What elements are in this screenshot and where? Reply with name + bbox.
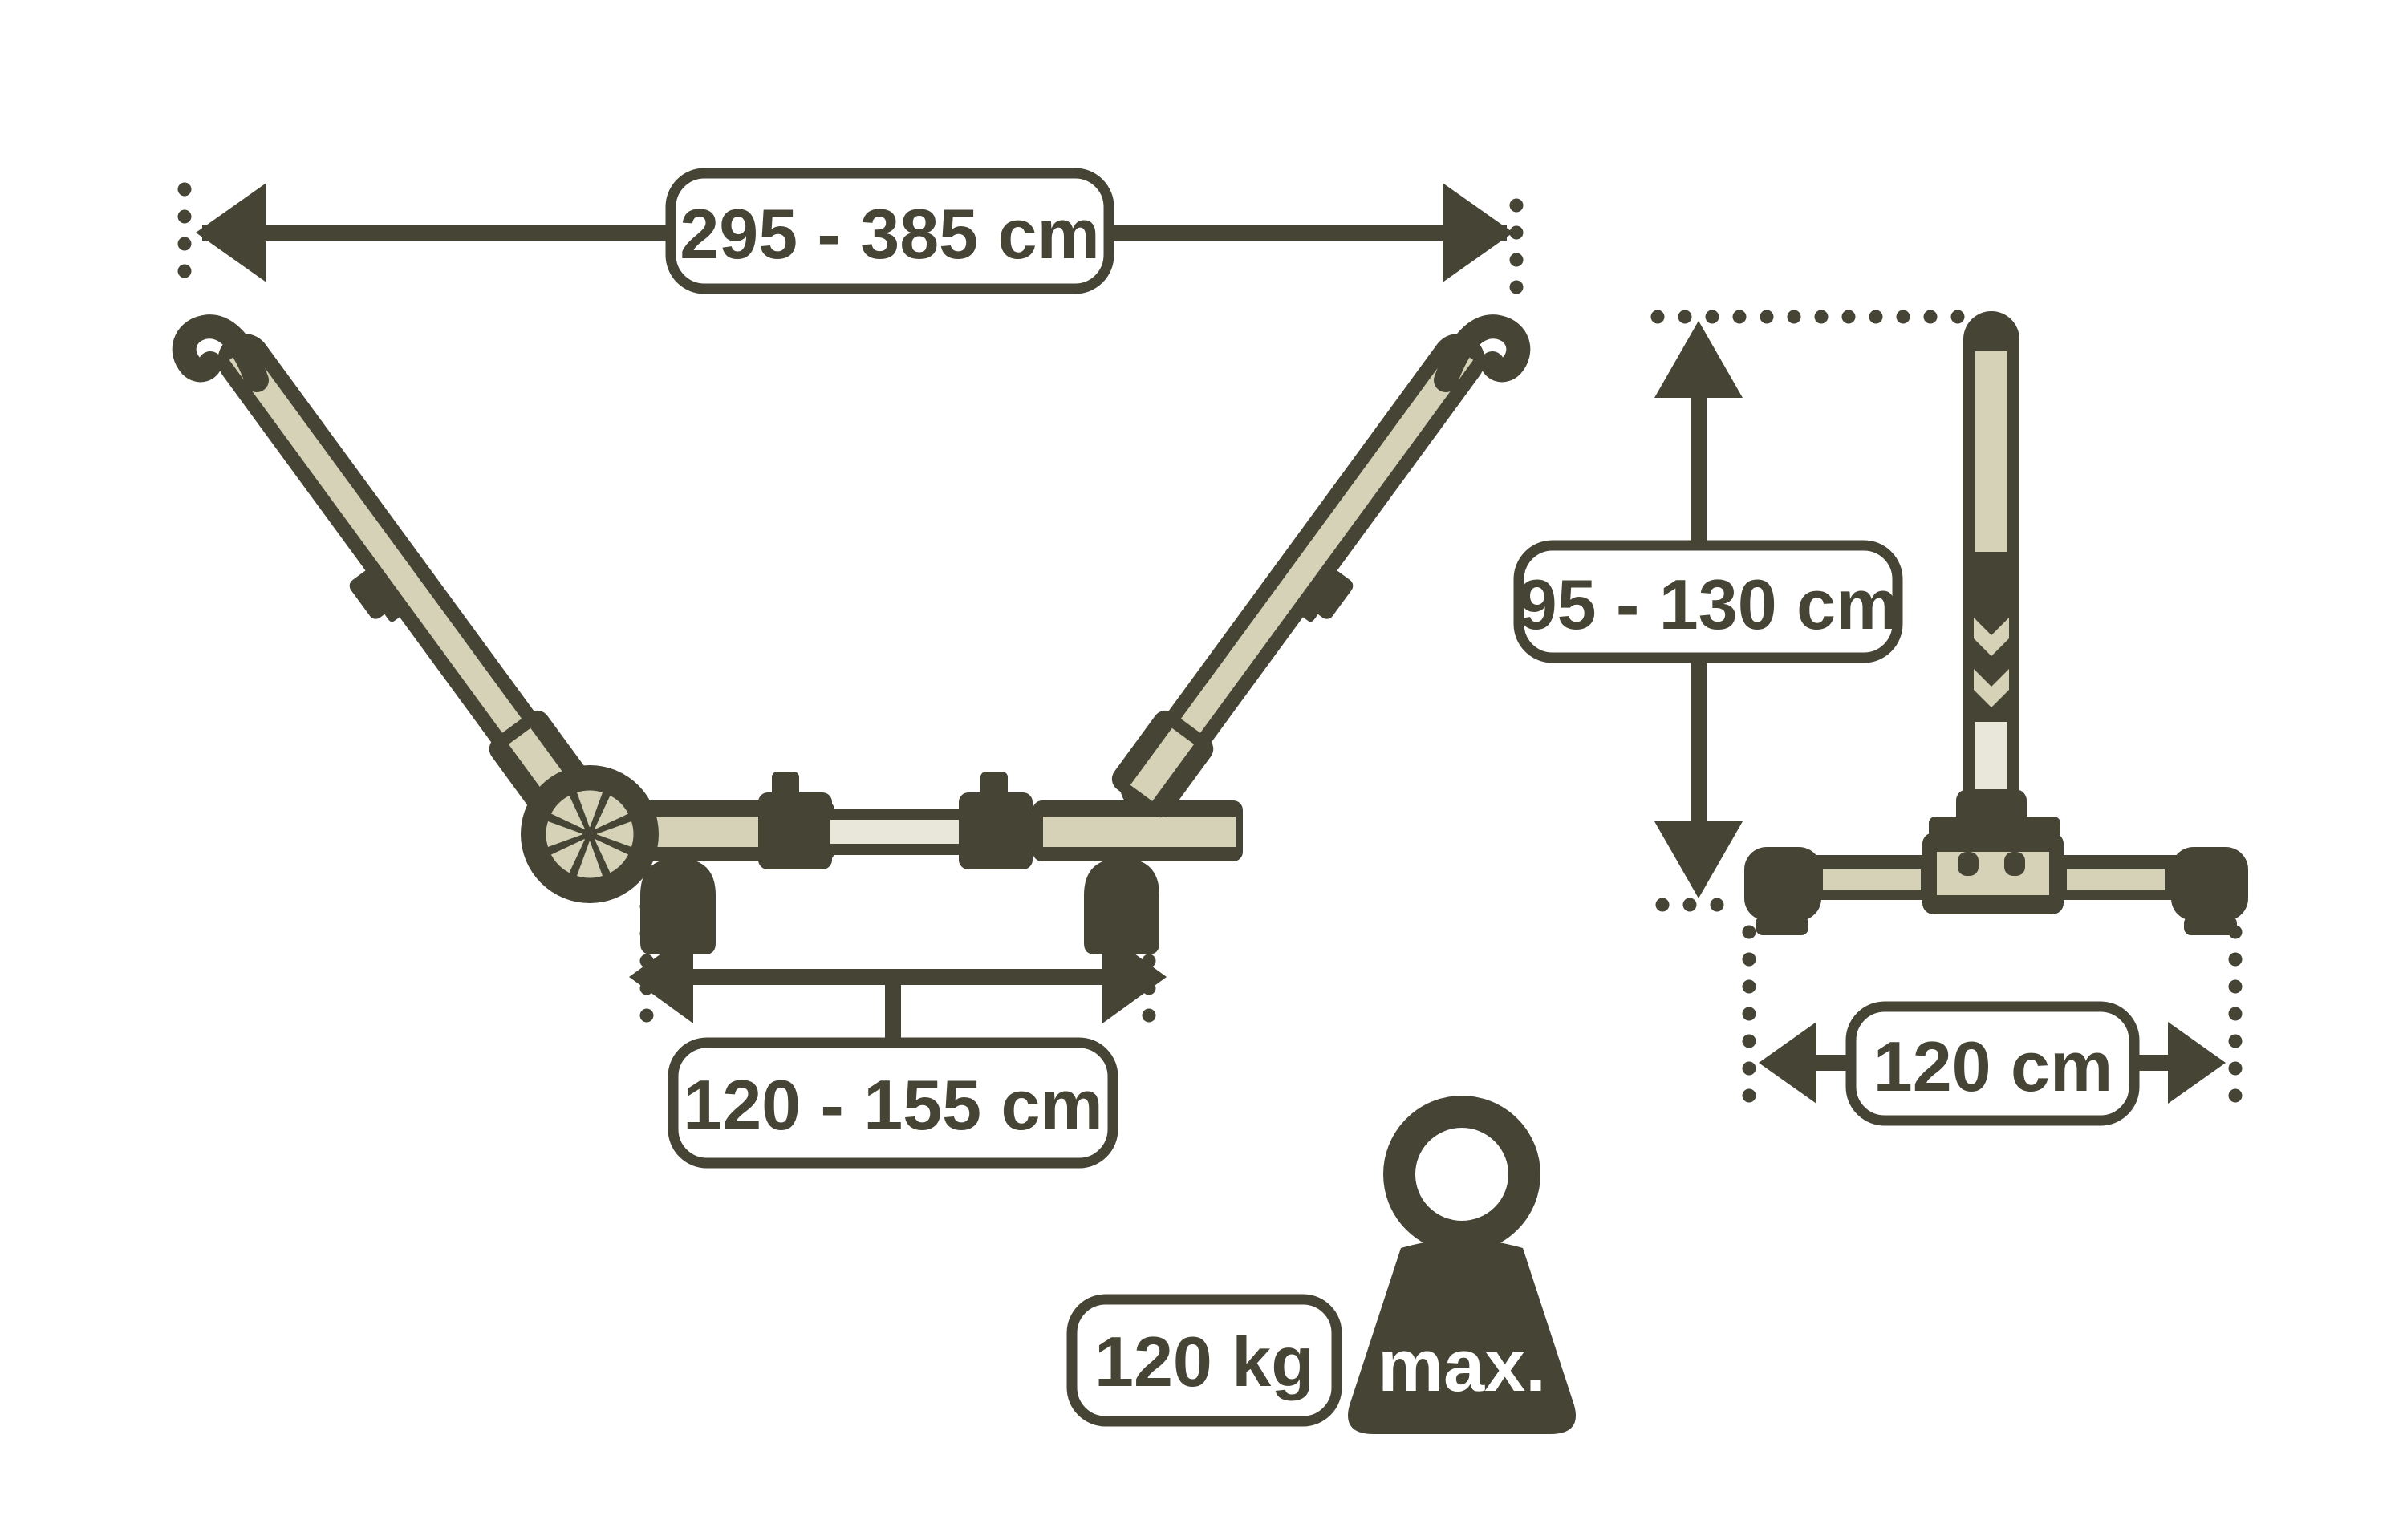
side-view: 95 - 130 cm [1518, 311, 2248, 1121]
height-label: 95 - 130 cm [1518, 565, 1899, 644]
wheel [521, 765, 659, 903]
arrowhead-right-icon [2168, 1022, 2226, 1104]
arrowhead-left-icon [196, 183, 266, 282]
base-clamp-left [758, 792, 832, 869]
pole-joint-sleeve [1956, 789, 2027, 839]
base-cap-left-lip [1756, 916, 1808, 935]
depth-label: 120 cm [1873, 1027, 2113, 1106]
right-arm [1103, 318, 1519, 837]
base-tube-right-fill [1043, 817, 1236, 847]
arrowhead-left-icon [1759, 1022, 1816, 1104]
top-width-dimension: 295 - 385 cm [185, 173, 1516, 311]
arrowhead-up-icon [1654, 321, 1743, 398]
base-clamp-right [959, 792, 1033, 869]
dimension-diagram: 295 - 385 cm [0, 0, 2407, 1540]
max-weight-text: max. [1378, 1325, 1546, 1407]
arrowhead-down-icon [1654, 821, 1743, 898]
base-bar-fill-left [1823, 869, 1921, 890]
depth-dimension: 120 cm [1662, 905, 2235, 1121]
t-joint-notch-right [2004, 852, 2025, 876]
pole-upper-fill [1975, 351, 2007, 552]
base-bar-fill-right [2067, 869, 2165, 890]
front-view: 295 - 385 cm [185, 173, 1519, 1163]
arrowhead-right-icon [1443, 183, 1513, 282]
pole [1956, 311, 2027, 863]
side-base [1744, 817, 2248, 935]
base-length-label: 120 - 155 cm [683, 1065, 1103, 1145]
pole-lower-fill [1975, 722, 2007, 791]
weight-ring-icon [1399, 1112, 1524, 1237]
t-joint-fill [1937, 852, 2049, 895]
base-inner-tube [830, 820, 960, 844]
height-dimension: 95 - 130 cm [1518, 317, 1963, 898]
spread-label: 295 - 385 cm [680, 194, 1100, 274]
wheel-hub [582, 827, 597, 841]
max-weight: max. 120 kg [1072, 1112, 1576, 1434]
t-joint-notch-left [1958, 852, 1979, 876]
left-arm [185, 318, 600, 837]
max-weight-label: 120 kg [1094, 1322, 1314, 1401]
diagram-canvas: 295 - 385 cm [0, 0, 2407, 1540]
